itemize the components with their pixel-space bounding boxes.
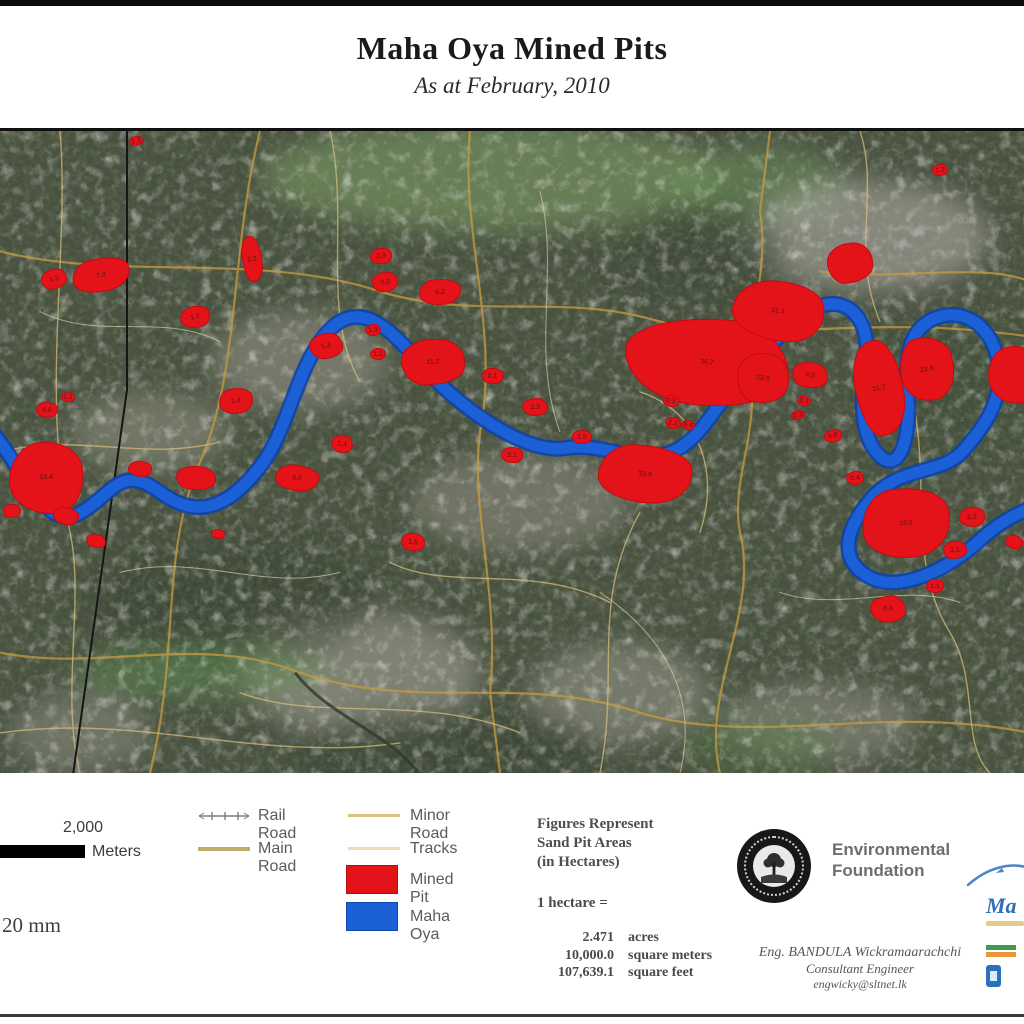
- mined-pit: [51, 505, 80, 527]
- mined-pit: 1.1: [128, 134, 144, 146]
- pit-area-label: 13.4: [39, 474, 53, 481]
- main-road-symbol: [198, 847, 250, 851]
- scale-unit: Meters: [92, 843, 141, 861]
- pit-area-label: 1.1: [930, 583, 940, 590]
- pit-area-label: 31.1: [771, 307, 785, 315]
- mined-pit: 1.5: [399, 531, 426, 553]
- mined-pit: 5.2: [418, 277, 462, 306]
- mined-pit: 3.1: [943, 540, 968, 559]
- pit-area-label: 0.3: [792, 410, 803, 419]
- mined-pit: 2.2: [958, 507, 985, 529]
- mined-pit: [3, 504, 21, 518]
- mined-pit: 1.2: [931, 162, 949, 176]
- mined-pit: [128, 461, 153, 479]
- legend-label-rail-road: Rail Road: [258, 807, 296, 843]
- legend-label-main-road: Main Road: [258, 840, 296, 876]
- partner-logo-tagline: [986, 921, 1024, 926]
- pit-area-label: 0.5: [665, 396, 676, 404]
- mined-pit: 0.1: [482, 368, 504, 384]
- mined-pit: 1.9: [364, 324, 381, 337]
- mined-pit: 0.4: [680, 419, 696, 431]
- map-subtitle: As at February, 2010: [0, 73, 1024, 99]
- pit-area-label: 2.2: [967, 514, 977, 522]
- pit-area-label: 1.7: [189, 313, 200, 322]
- engineer-title: Consultant Engineer: [740, 961, 980, 977]
- partner-logo-swoosh-icon: [966, 859, 1024, 889]
- mined-pit: 1.7: [178, 304, 211, 331]
- legend-label-mined-pit: Mined Pit: [410, 871, 454, 907]
- conversion-row: 107,639.1 square feet: [532, 964, 712, 982]
- mined-pit: [210, 528, 225, 540]
- mined-pit: 3.3: [521, 398, 547, 416]
- pit-area-label: 3.1: [507, 452, 517, 459]
- pit-area-label: 4.6: [42, 407, 52, 414]
- figures-note: Figures Represent Sand Pit Areas (in Hec…: [537, 815, 654, 871]
- mined-pit: 18.6: [859, 483, 954, 562]
- pit-area-label: 1.4: [337, 440, 348, 448]
- pit-area-label: 8.4: [883, 606, 893, 613]
- conversion-row: 2.471 acres: [532, 929, 712, 947]
- pit-area-label: 0.1: [798, 396, 809, 405]
- partner-flag-bar-orange: [986, 952, 1016, 957]
- pit-area-label: 8.0: [292, 474, 302, 482]
- engineer-credit: Eng. BANDULA Wickramaarachchi Consultant…: [740, 945, 980, 992]
- mined-pit: [984, 343, 1024, 408]
- mined-pit: [85, 532, 107, 550]
- mined-pit-swatch: [346, 865, 398, 894]
- pit-area-label: 11.7: [426, 358, 439, 365]
- pit-area-label: 1.3: [49, 274, 60, 283]
- mined-pit: [825, 240, 876, 285]
- mined-pit: 1.1: [370, 348, 386, 361]
- mined-pit: 1.1: [60, 391, 75, 402]
- scale-bar: [0, 845, 85, 858]
- pit-area-label: 7.3: [96, 271, 107, 280]
- pit-area-label: 0.8: [827, 432, 838, 441]
- mined-pit: 0.3: [790, 408, 806, 421]
- pit-area-label: 4.0: [805, 371, 816, 380]
- mined-pit: 4.0: [790, 359, 830, 391]
- partner-badge-icon: [986, 965, 1001, 987]
- rail-road-symbol: [198, 809, 250, 823]
- mined-pit: 5.4: [307, 331, 344, 361]
- mined-pit: 2.3: [369, 247, 393, 265]
- pit-area-label: 1.0: [577, 433, 587, 440]
- mined-pit: 3.1: [501, 447, 524, 464]
- mined-pit: 1.4: [330, 433, 354, 454]
- mined-pit: 0.1: [796, 394, 812, 407]
- pit-area-label: 3.4: [230, 396, 241, 404]
- pit-area-label: 3.3: [247, 255, 258, 263]
- mined-pit: 8.0: [274, 462, 320, 492]
- print-scale-note: 20 mm: [2, 913, 61, 938]
- pit-area-label: 1.2: [935, 165, 946, 173]
- pit-area-label: 36.7: [699, 358, 713, 366]
- pit-area-label: 18.6: [899, 518, 913, 526]
- mined-pit: [1003, 533, 1024, 550]
- maha-oya-swatch: [346, 902, 398, 931]
- partner-flag-bar-green: [986, 945, 1016, 950]
- pit-area-label: 22.6: [919, 364, 934, 373]
- conversion-table: 2.471 acres 10,000.0 square meters 107,6…: [532, 929, 712, 982]
- pit-area-label: 13.5: [756, 374, 770, 383]
- environmental-foundation-seal-icon: [737, 829, 811, 903]
- mined-pit: 13.4: [9, 442, 83, 514]
- map-title: Maha Oya Mined Pits: [0, 30, 1024, 67]
- engineer-email: engwicky@sltnet.lk: [740, 977, 980, 992]
- mined-pit: 1.1: [926, 579, 944, 594]
- pit-area-label: 1.9: [368, 326, 378, 333]
- mined-pit: 0.4: [845, 470, 864, 486]
- mined-pit: 33.8: [596, 442, 694, 506]
- pit-area-label: 0.4: [850, 474, 860, 482]
- pit-area-label: 1.5: [407, 538, 418, 546]
- tracks-symbol: [348, 847, 400, 850]
- mined-pit: 1.3: [39, 266, 69, 291]
- pit-area-label: 33.8: [638, 471, 652, 479]
- footer: 2,000 Meters 20 mm Rail Road Minor Road …: [0, 773, 1024, 1014]
- pit-area-label: 21.7: [871, 383, 886, 392]
- pit-area-label: 1.1: [131, 136, 142, 145]
- mined-pit: [175, 465, 217, 492]
- hectare-heading: 1 hectare =: [537, 895, 608, 912]
- legend-label-minor-road: Minor Road: [410, 807, 450, 843]
- pit-area-label: 3.1: [950, 546, 960, 553]
- mined-pit: 2.1: [664, 416, 682, 430]
- pit-area-label: 0.4: [683, 421, 694, 430]
- map-canvas[interactable]: 1.37.31.11.73.33.45.42.33.35.21.91.111.7…: [0, 128, 1024, 776]
- mined-pit: 4.6: [36, 402, 59, 419]
- minor-road-symbol: [348, 814, 400, 817]
- engineer-name: Eng. BANDULA Wickramaarachchi: [740, 945, 980, 961]
- pit-area-label: 1.1: [63, 393, 73, 400]
- mined-pit: 3.4: [217, 385, 254, 415]
- legend-label-tracks: Tracks: [410, 840, 457, 858]
- pit-area-label: 0.1: [488, 373, 498, 380]
- pit-area-label: 3.3: [380, 278, 390, 286]
- mined-pit: 0.8: [822, 428, 842, 444]
- page-bottom-border: [0, 1014, 1024, 1017]
- partner-logo-text: Ma: [986, 893, 1017, 919]
- mined-pit: 3.3: [371, 271, 399, 293]
- pit-area-label: 2.3: [376, 252, 386, 260]
- title-band: Maha Oya Mined Pits As at February, 2010: [0, 6, 1024, 128]
- legend-label-maha-oya: Maha Oya: [410, 908, 450, 944]
- pits-layer: 1.37.31.11.73.33.45.42.33.35.21.91.111.7…: [0, 131, 1024, 773]
- conversion-row: 10,000.0 square meters: [532, 947, 712, 965]
- mined-pit: 7.3: [69, 253, 133, 298]
- pit-area-label: 5.2: [435, 288, 445, 296]
- pit-area-label: 1.1: [373, 351, 383, 358]
- pit-area-label: 3.3: [530, 403, 540, 410]
- org-name: Environmental Foundation: [832, 839, 950, 882]
- pit-area-label: 5.4: [320, 342, 331, 350]
- scale-distance: 2,000: [8, 819, 103, 837]
- mined-pit: 3.3: [238, 235, 265, 284]
- mined-pit: 8.4: [870, 595, 906, 623]
- mined-pit: 1.0: [571, 429, 592, 444]
- pit-area-label: 2.1: [667, 419, 678, 427]
- mined-pit: 11.7: [401, 339, 466, 386]
